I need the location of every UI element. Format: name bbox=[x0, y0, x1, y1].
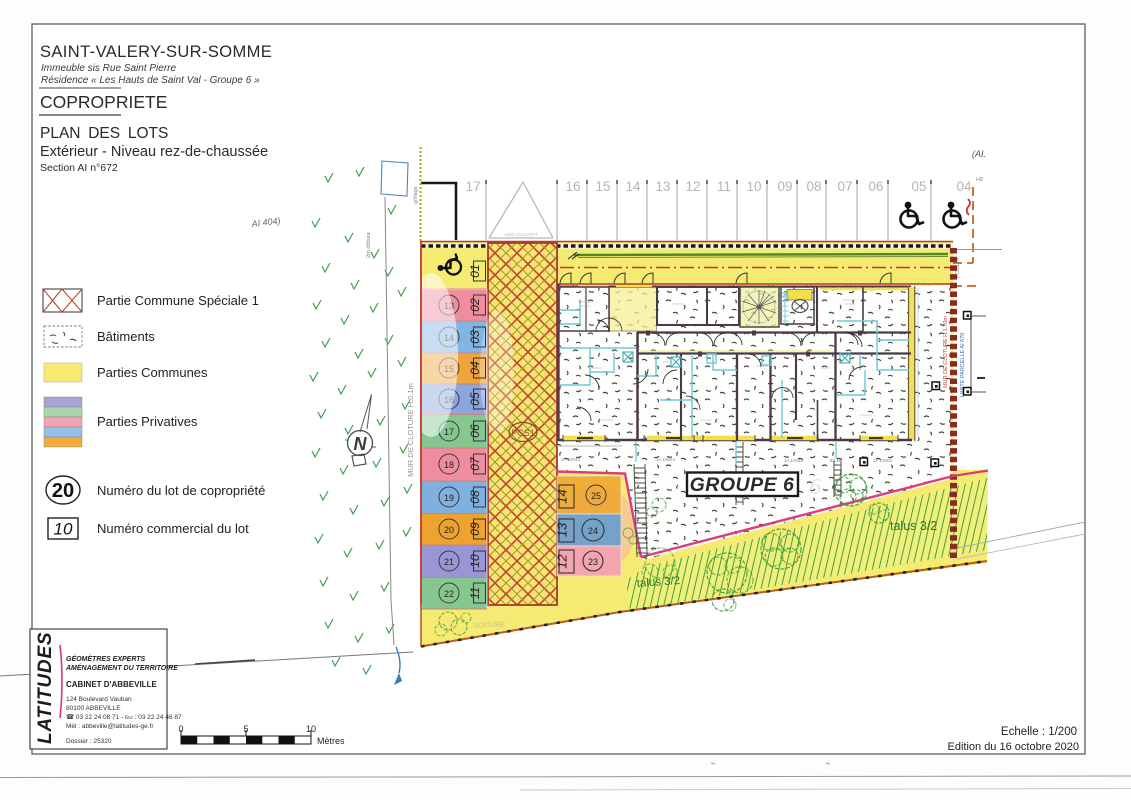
svg-text:06: 06 bbox=[868, 179, 883, 194]
svg-text:Parties Privatives: Parties Privatives bbox=[97, 414, 198, 429]
svg-text:Edition du 16 octobre 2020: Edition du 16 octobre 2020 bbox=[948, 741, 1080, 753]
svg-text:talus 3/2: talus 3/2 bbox=[890, 519, 937, 533]
svg-text:14: 14 bbox=[625, 179, 641, 194]
svg-text:Echelle : 1/200: Echelle : 1/200 bbox=[1001, 726, 1077, 738]
svg-text:20: 20 bbox=[52, 480, 74, 502]
svg-text:11: 11 bbox=[468, 587, 482, 599]
svg-text:14: 14 bbox=[555, 489, 570, 503]
svg-text:Numéro commercial du lot: Numéro commercial du lot bbox=[97, 521, 249, 536]
svg-text:13: 13 bbox=[555, 522, 570, 537]
svg-text:H8: H8 bbox=[976, 177, 983, 183]
svg-text:Dossier : 25320: Dossier : 25320 bbox=[66, 738, 112, 745]
svg-text:GÉOMÈTRES EXPERTS: GÉOMÈTRES EXPERTS bbox=[66, 654, 146, 663]
svg-text:17: 17 bbox=[465, 179, 480, 194]
svg-text:80100 ABBEVILLE: 80100 ABBEVILLE bbox=[66, 705, 121, 712]
svg-text:15: 15 bbox=[595, 179, 610, 194]
svg-text:05: 05 bbox=[468, 392, 482, 406]
svg-text:Mél : abbeville@latitudes-ge.f: Mél : abbeville@latitudes-ge.fr bbox=[66, 723, 154, 730]
svg-text:LATITUDES: LATITUDES bbox=[35, 632, 56, 744]
svg-text:1A 10044: 1A 10044 bbox=[784, 458, 804, 463]
svg-text:Mètres: Mètres bbox=[317, 736, 345, 746]
svg-text:COPROPRIETE: COPROPRIETE bbox=[40, 92, 167, 112]
svg-text:Bâtiments: Bâtiments bbox=[97, 329, 155, 344]
svg-text:2m clôture: 2m clôture bbox=[366, 232, 372, 258]
svg-text:07: 07 bbox=[468, 456, 482, 471]
svg-text:08: 08 bbox=[468, 490, 482, 504]
svg-text:ABRI COUVERT: ABRI COUVERT bbox=[504, 232, 538, 237]
svg-text:22: 22 bbox=[444, 589, 454, 599]
svg-text:PLAN DES LOTS: PLAN DES LOTS bbox=[40, 125, 168, 142]
svg-text:04: 04 bbox=[468, 361, 482, 375]
svg-text:10: 10 bbox=[54, 520, 73, 539]
svg-text:21: 21 bbox=[444, 557, 454, 567]
svg-text:08: 08 bbox=[806, 179, 821, 194]
svg-text:1A 10044: 1A 10044 bbox=[656, 457, 676, 462]
svg-text:03: 03 bbox=[468, 330, 482, 344]
svg-text:CABINET D'ABBEVILLE: CABINET D'ABBEVILLE bbox=[66, 680, 157, 689]
svg-text:09: 09 bbox=[468, 522, 482, 536]
svg-text:25: 25 bbox=[591, 491, 601, 501]
svg-text:Résidence « Les Hauts de Saint: Résidence « Les Hauts de Saint Val - Gro… bbox=[41, 75, 260, 86]
svg-text:06: 06 bbox=[468, 424, 482, 438]
svg-text:09: 09 bbox=[777, 179, 792, 194]
svg-text:17: 17 bbox=[444, 427, 454, 437]
svg-text:05: 05 bbox=[911, 179, 926, 194]
svg-text:10: 10 bbox=[468, 554, 482, 568]
svg-text:GROUPE 6: GROUPE 6 bbox=[690, 474, 795, 496]
svg-text:24: 24 bbox=[588, 526, 598, 536]
svg-text:☎ 03 22 24 08 71 - ℻ : 03 22 2: ☎ 03 22 24 08 71 - ℻ : 03 22 24 46 87 bbox=[66, 713, 182, 721]
svg-text:Partie Commune Spéciale 1: Partie Commune Spéciale 1 bbox=[97, 293, 259, 308]
svg-text:Section AI n°672: Section AI n°672 bbox=[40, 162, 118, 174]
svg-text:N: N bbox=[354, 434, 368, 454]
svg-text:1A 10004: 1A 10004 bbox=[873, 458, 893, 463]
svg-text:02: 02 bbox=[468, 298, 482, 312]
svg-text:(AI.: (AI. bbox=[972, 149, 986, 159]
svg-text:PCS1: PCS1 bbox=[511, 428, 535, 438]
svg-text:1A 10044: 1A 10044 bbox=[561, 457, 581, 462]
svg-text:MUR DE CLOTURE H:1.70m: MUR DE CLOTURE H:1.70m bbox=[943, 316, 949, 388]
svg-text:grillage: grillage bbox=[413, 186, 419, 204]
svg-text:23: 23 bbox=[588, 557, 598, 567]
svg-text:11: 11 bbox=[717, 179, 731, 194]
svg-text:07: 07 bbox=[837, 179, 852, 194]
svg-text:2A 19: 2A 19 bbox=[830, 458, 842, 463]
svg-text:19: 19 bbox=[444, 493, 454, 503]
svg-text:Parties Communes: Parties Communes bbox=[97, 365, 208, 380]
svg-text:124 Boulevard Vauban: 124 Boulevard Vauban bbox=[66, 696, 132, 703]
svg-text:13: 13 bbox=[655, 179, 670, 194]
svg-text:SAINT-VALERY-SUR-SOMME: SAINT-VALERY-SUR-SOMME bbox=[40, 43, 272, 61]
svg-text:16: 16 bbox=[565, 179, 580, 194]
svg-text:12: 12 bbox=[555, 554, 570, 569]
svg-text:Numéro du lot de copropriété: Numéro du lot de copropriété bbox=[97, 483, 265, 498]
svg-text:6: 6 bbox=[809, 474, 822, 499]
svg-text:20: 20 bbox=[444, 525, 454, 535]
svg-text:AMÉNAGEMENT DU TERRITOIRE: AMÉNAGEMENT DU TERRITOIRE bbox=[65, 663, 178, 672]
svg-text:Extérieur - Niveau rez-de-chau: Extérieur - Niveau rez-de-chaussée bbox=[40, 144, 268, 160]
svg-text:12: 12 bbox=[685, 179, 700, 194]
svg-text:01: 01 bbox=[468, 264, 482, 277]
svg-text:MUR DE CLOTURE H:0.1m: MUR DE CLOTURE H:0.1m bbox=[406, 383, 415, 477]
svg-text:Immeuble sis Rue Saint Pierre: Immeuble sis Rue Saint Pierre bbox=[41, 63, 176, 74]
svg-text:18: 18 bbox=[444, 460, 454, 470]
svg-text:04: 04 bbox=[956, 179, 972, 194]
svg-text:10: 10 bbox=[746, 179, 761, 194]
